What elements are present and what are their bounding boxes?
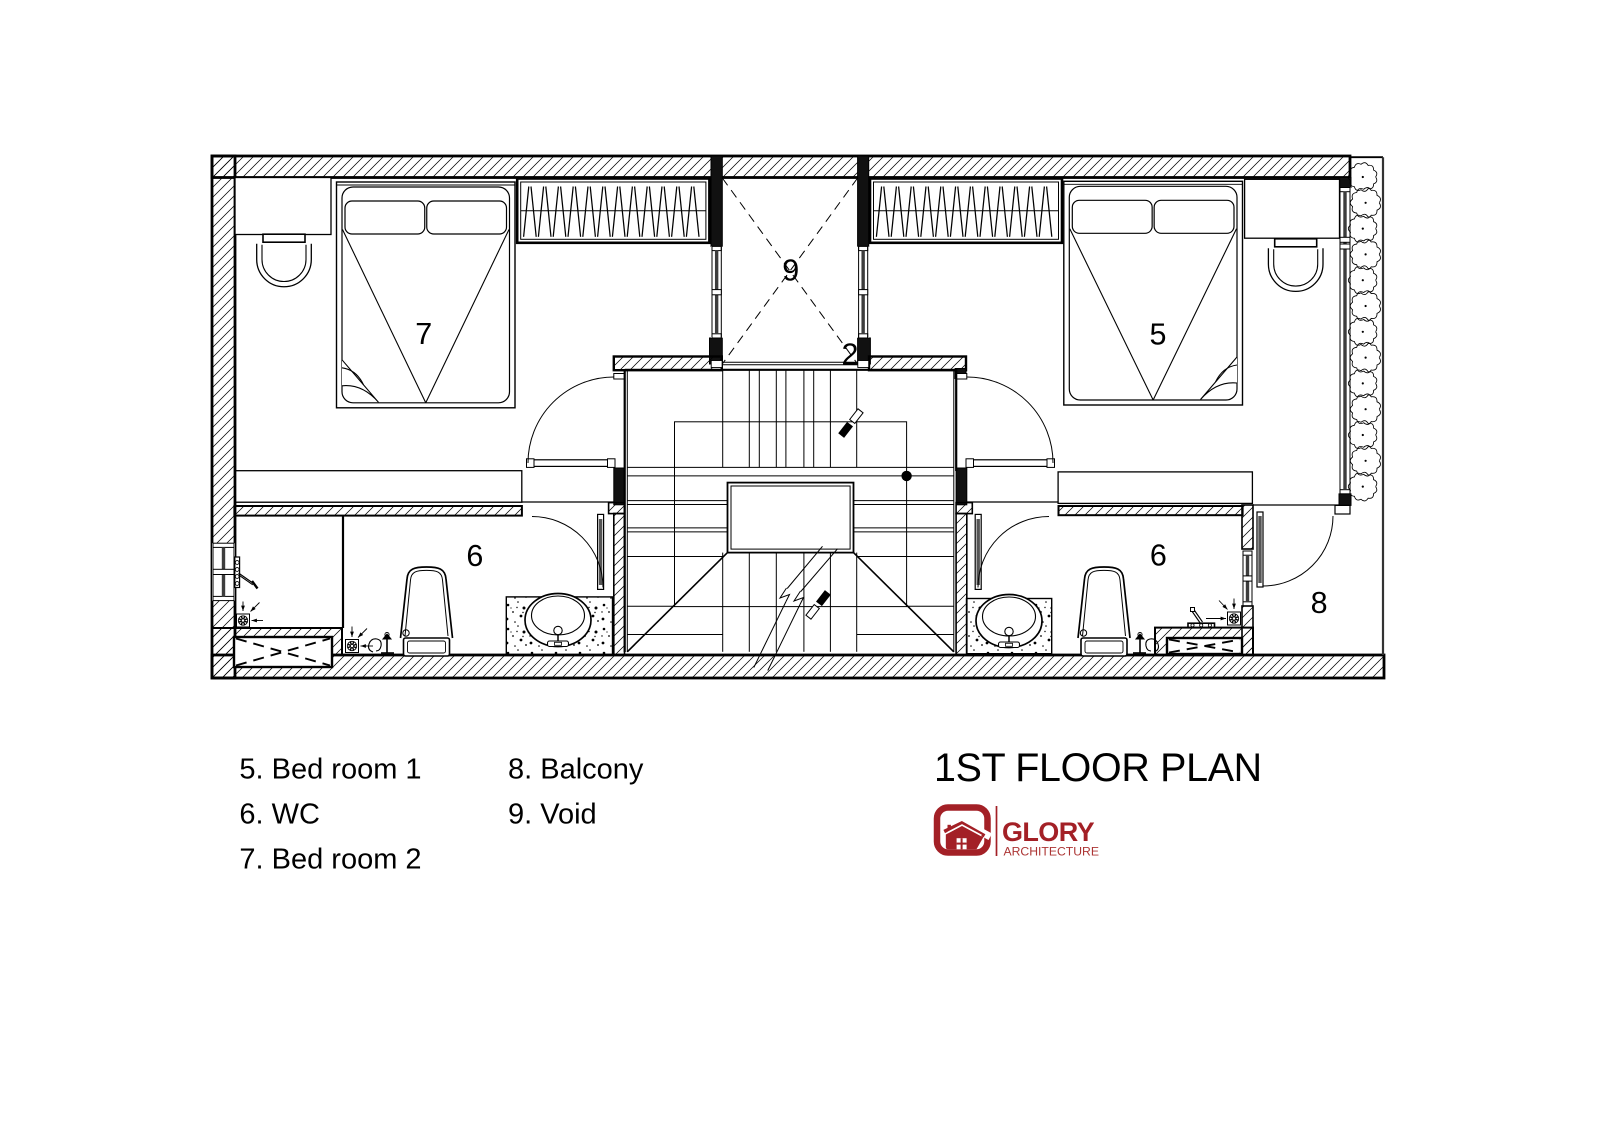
svg-text:9. Void: 9. Void [508, 799, 597, 831]
svg-text:1ST FLOOR PLAN: 1ST FLOOR PLAN [934, 746, 1262, 790]
svg-text:5. Bed room 1: 5. Bed room 1 [239, 754, 421, 786]
svg-text:8. Balcony: 8. Balcony [508, 754, 644, 786]
svg-text:6. WC: 6. WC [239, 799, 320, 831]
svg-text:5: 5 [1150, 317, 1167, 351]
svg-text:6: 6 [466, 539, 483, 573]
svg-text:6: 6 [1150, 539, 1167, 573]
svg-text:GLORY: GLORY [1002, 817, 1095, 847]
svg-text:7. Bed room 2: 7. Bed room 2 [239, 844, 421, 876]
svg-text:7: 7 [415, 317, 432, 351]
svg-text:ARCHITECTURE: ARCHITECTURE [1004, 845, 1099, 859]
svg-text:9: 9 [782, 254, 799, 288]
svg-text:2: 2 [842, 338, 859, 372]
svg-text:8: 8 [1311, 586, 1328, 620]
